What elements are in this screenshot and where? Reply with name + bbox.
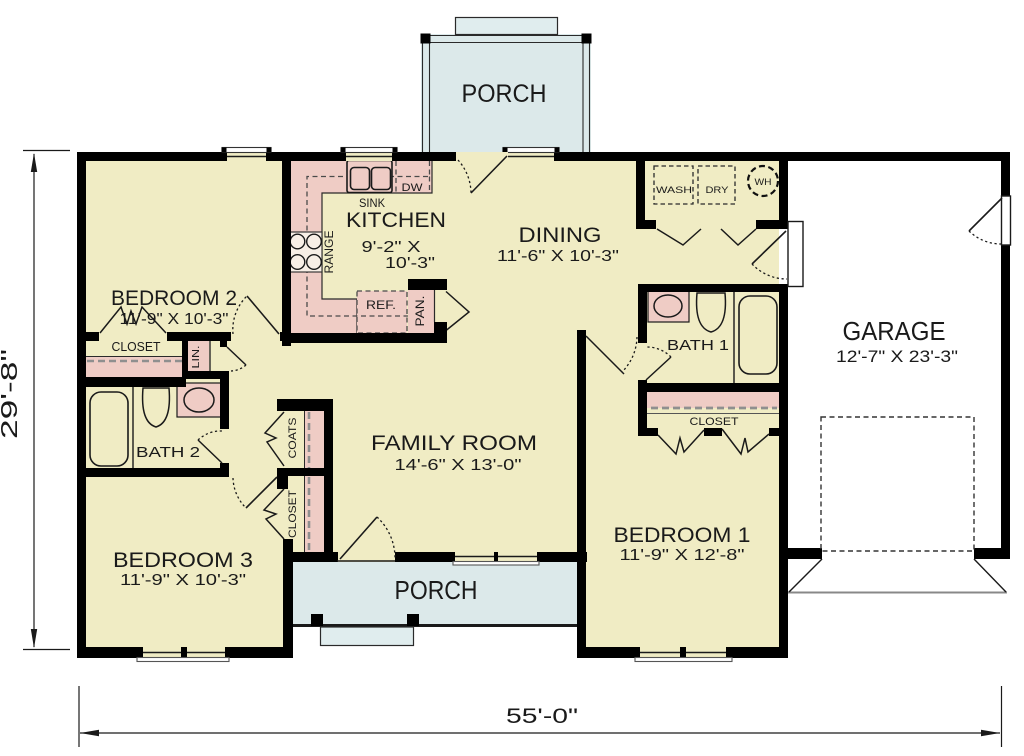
svg-text:KITCHEN: KITCHEN — [346, 208, 446, 232]
svg-text:WASH: WASH — [656, 185, 692, 195]
svg-text:BATH 1: BATH 1 — [667, 337, 729, 354]
svg-text:WH: WH — [755, 177, 772, 188]
svg-text:BATH 2: BATH 2 — [136, 444, 200, 461]
svg-text:PORCH: PORCH — [395, 577, 478, 605]
svg-text:RANGE: RANGE — [324, 230, 336, 273]
svg-text:DRY: DRY — [706, 185, 729, 195]
svg-text:12'-7" X 23'-3": 12'-7" X 23'-3" — [836, 347, 958, 366]
svg-text:CLOSET: CLOSET — [287, 490, 299, 538]
svg-text:PORCH: PORCH — [462, 80, 547, 108]
svg-text:BEDROOM 1: BEDROOM 1 — [614, 523, 751, 547]
svg-text:CLOSET: CLOSET — [112, 340, 161, 354]
svg-text:BEDROOM 2: BEDROOM 2 — [111, 286, 237, 310]
svg-text:11'-9" X 12'-8": 11'-9" X 12'-8" — [620, 547, 745, 564]
svg-text:BEDROOM 3: BEDROOM 3 — [113, 548, 253, 572]
svg-text:CLOSET: CLOSET — [690, 416, 739, 428]
svg-text:55'-0": 55'-0" — [506, 705, 578, 728]
svg-text:11'-6" X 10'-3": 11'-6" X 10'-3" — [497, 248, 619, 265]
svg-text:11'-9" X 10'-3": 11'-9" X 10'-3" — [120, 572, 246, 589]
svg-text:FAMILY ROOM: FAMILY ROOM — [371, 431, 537, 455]
svg-text:14'-6" X 13'-0": 14'-6" X 13'-0" — [395, 457, 522, 474]
svg-text:29'-8": 29'-8" — [0, 349, 22, 439]
svg-text:LIN.: LIN. — [191, 346, 202, 369]
svg-text:DW: DW — [402, 182, 424, 194]
svg-text:GARAGE: GARAGE — [843, 316, 946, 346]
svg-text:10'-3": 10'-3" — [385, 255, 435, 272]
svg-text:REF.: REF. — [366, 298, 396, 312]
svg-text:9'-2" X: 9'-2" X — [362, 239, 422, 256]
svg-text:PAN.: PAN. — [413, 296, 427, 327]
svg-text:COATS: COATS — [287, 418, 299, 459]
svg-text:DINING: DINING — [519, 223, 602, 247]
